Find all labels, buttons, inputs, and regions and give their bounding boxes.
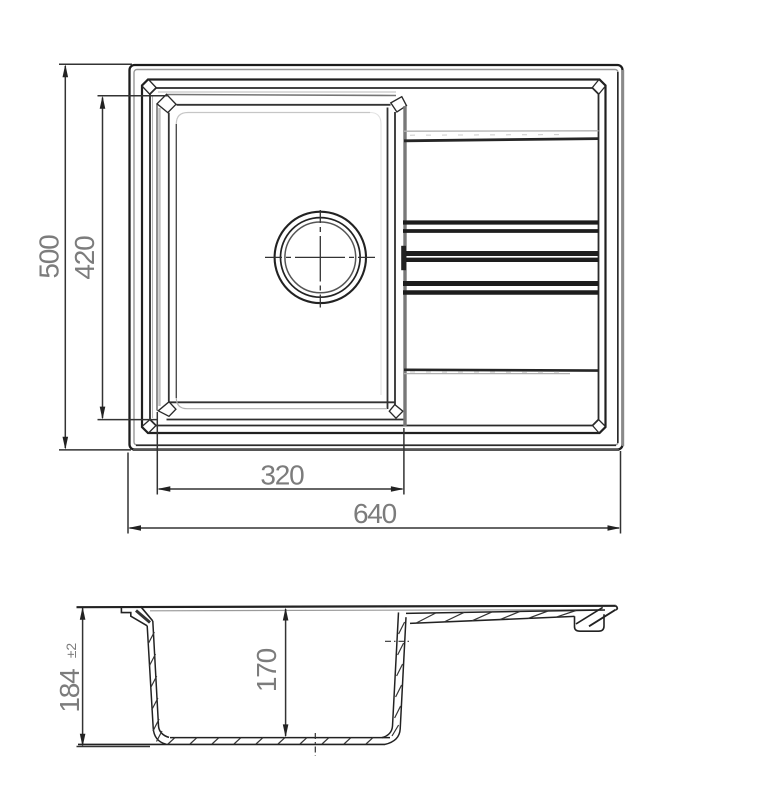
svg-text:420: 420 [69, 236, 100, 280]
svg-text:640: 640 [353, 498, 397, 529]
svg-text:170: 170 [251, 648, 282, 692]
svg-text:320: 320 [260, 460, 304, 491]
svg-text:500: 500 [33, 235, 64, 279]
svg-text:184: 184 [54, 669, 85, 713]
svg-text:±2: ±2 [63, 643, 79, 659]
